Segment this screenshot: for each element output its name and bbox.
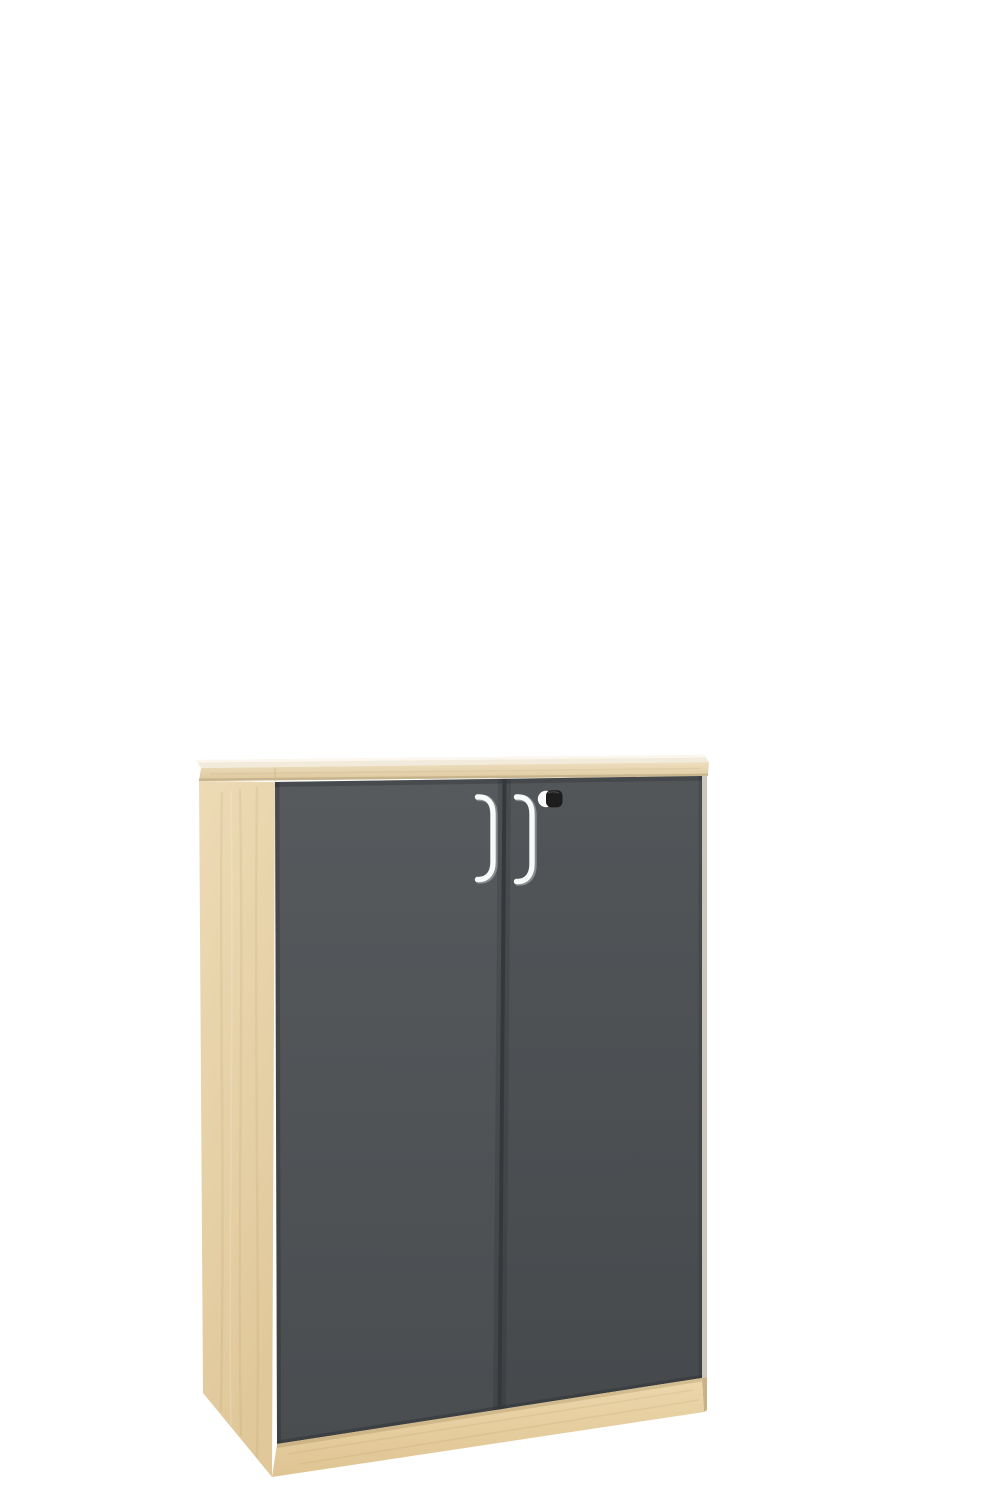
product-image	[0, 0, 1000, 1500]
right-side-edge	[702, 775, 707, 1378]
cabinet-render	[0, 0, 1000, 1500]
right-door-edge-shadow	[699, 776, 703, 1379]
lock-cylinder	[538, 790, 563, 807]
left-side-panel	[199, 781, 275, 1477]
